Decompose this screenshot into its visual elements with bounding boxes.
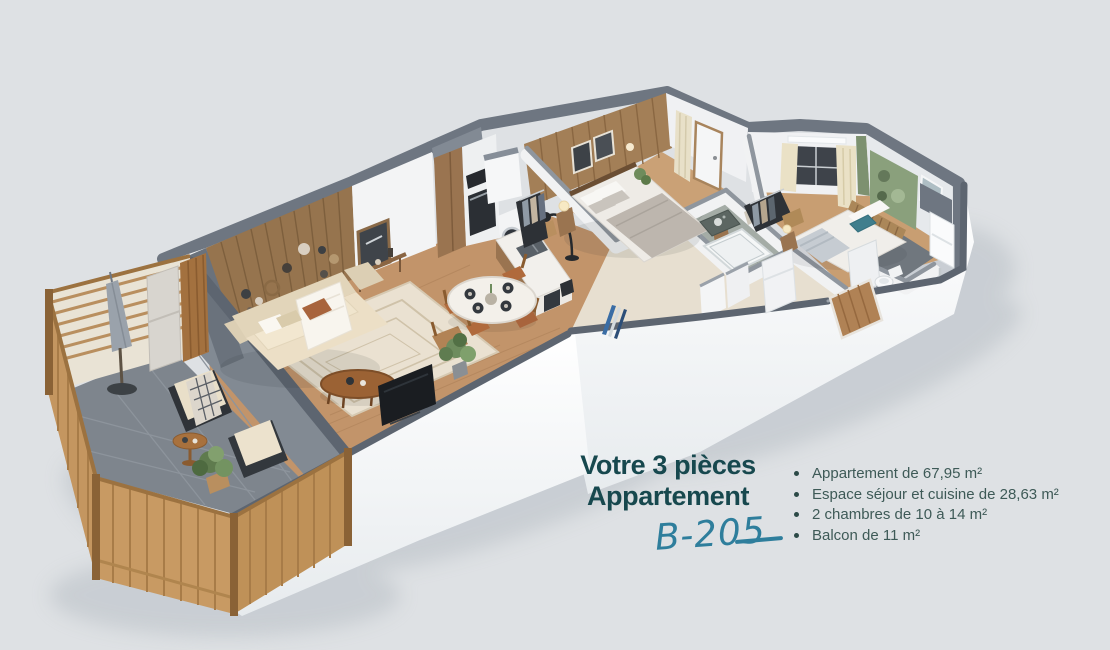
curtain-left [780, 143, 798, 192]
bed-picture-1 [572, 141, 592, 173]
wall-lamp [626, 143, 634, 151]
detail-item-living: Espace séjour et cuisine de 28,63 m² [792, 487, 1059, 503]
outdoor-cabinet [147, 266, 181, 371]
title-line-1: Votre 3 pièces [538, 450, 798, 481]
detail-item-bedrooms: 2 chambres de 10 à 14 m² [792, 507, 1059, 523]
detail-item-surface: Appartement de 67,95 m² [792, 466, 1059, 482]
promo-image: Votre 3 pièces Appartement B-205 Apparte… [0, 0, 1110, 650]
unit-code: B-205 [655, 514, 815, 574]
detail-item-balcony: Balcon de 11 m² [792, 528, 1059, 544]
unit-code-text: B-205 [654, 510, 767, 559]
floorplan-3d-render [0, 0, 1110, 650]
caption-block: Votre 3 pièces Appartement [538, 450, 798, 512]
curtain [674, 110, 692, 182]
door [694, 122, 722, 190]
details-list: Appartement de 67,95 m² Espace séjour et… [792, 466, 1059, 548]
curtain-right [836, 145, 856, 210]
title-line-2: Appartement [538, 481, 798, 512]
bedside-lamp [559, 201, 569, 211]
